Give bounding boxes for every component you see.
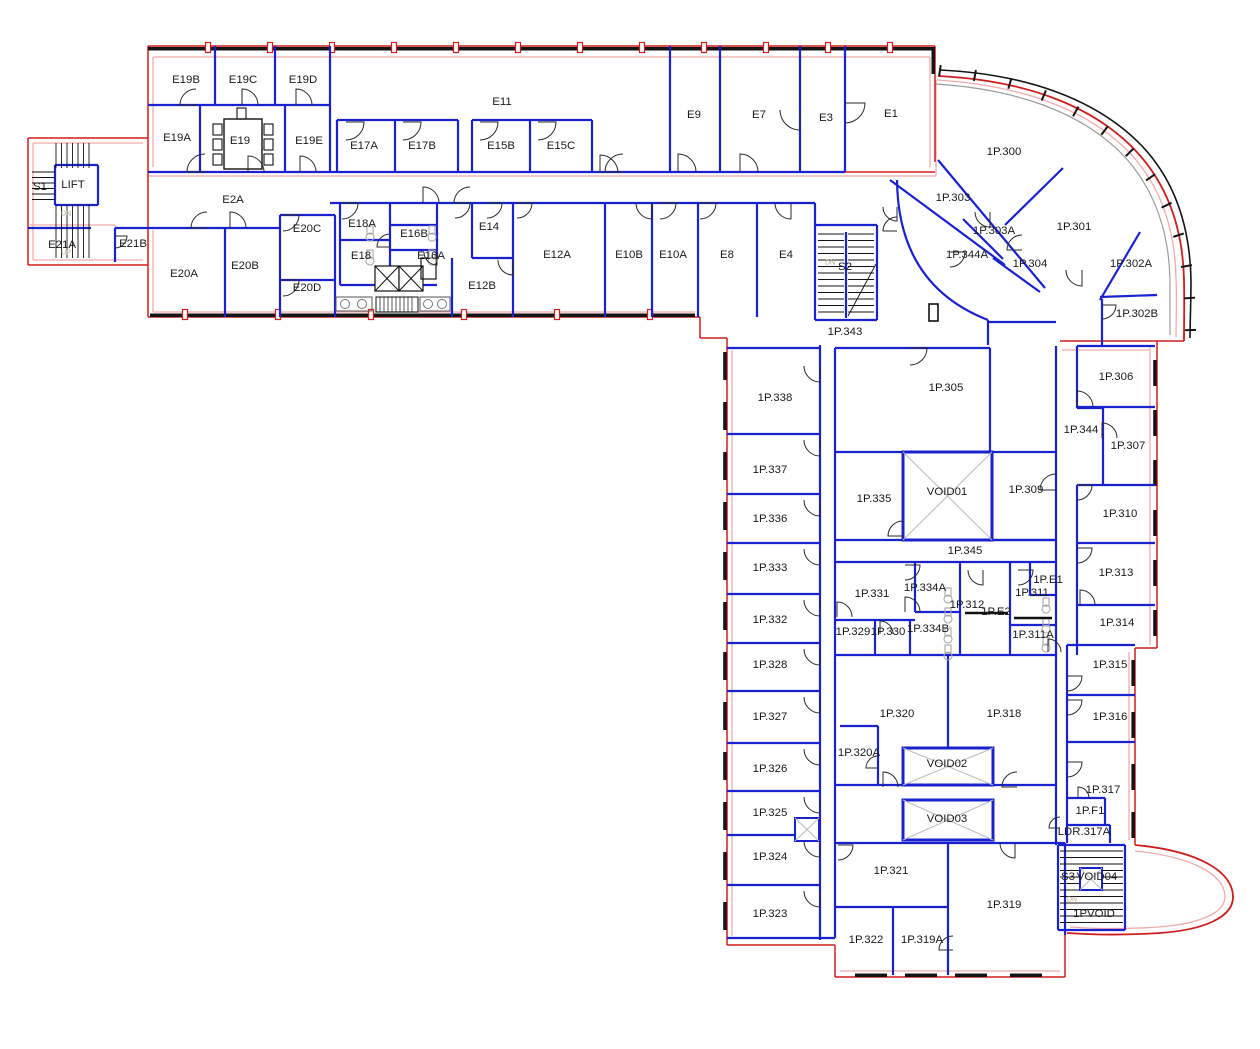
room-label-1P-324: 1P.324	[753, 851, 788, 863]
window-band-west-wing	[723, 452, 727, 480]
door-swing	[804, 697, 820, 713]
door-swing	[905, 597, 920, 612]
room-label-E19D: E19D	[289, 74, 318, 86]
window-band-west-wing	[723, 552, 727, 580]
door-swing	[804, 500, 820, 516]
room-label-1P-325: 1P.325	[753, 807, 788, 819]
window-band-east-upper	[1153, 360, 1157, 386]
room-label-1P-336: 1P.336	[753, 513, 788, 525]
window-mullion	[516, 43, 521, 53]
door-swing	[1066, 270, 1082, 286]
door-swing	[636, 203, 652, 219]
room-label-1P-345: 1P.345	[948, 545, 983, 557]
door-swing	[804, 749, 820, 765]
door-swing	[498, 260, 513, 275]
room-label-1P-310: 1P.310	[1103, 508, 1138, 520]
door-swing	[888, 521, 903, 536]
room-label-1P-317: 1P.317	[1086, 784, 1121, 796]
room-label-1P-315: 1P.315	[1093, 659, 1128, 671]
door-swing	[480, 122, 498, 140]
room-label-1P-313: 1P.313	[1099, 567, 1134, 579]
window-mullion	[640, 43, 645, 53]
door-leaf-on-curve	[929, 304, 938, 321]
door-swing	[296, 89, 312, 105]
room-label-E20B: E20B	[231, 260, 259, 272]
room-label-1P-337: 1P.337	[753, 464, 788, 476]
room-label-1P-338: 1P.338	[758, 392, 793, 404]
door-swing	[804, 797, 820, 813]
room-label-VOID02: VOID02	[927, 758, 968, 770]
room-label-E10A: E10A	[659, 249, 687, 261]
window-band-west-wing	[723, 702, 727, 730]
window-band-top	[148, 47, 935, 51]
window-band-bottom-west	[150, 314, 695, 318]
door-swing	[883, 217, 897, 231]
chair	[264, 154, 273, 165]
door-swing	[242, 89, 258, 105]
room-label-1P-323: 1P.323	[753, 908, 788, 920]
door-swing	[487, 203, 502, 218]
room-label-1P-319: 1P.319	[987, 899, 1022, 911]
curved-facade-inner-pink	[937, 80, 1176, 337]
sink-basin	[341, 300, 350, 309]
room-label-E1: E1	[884, 108, 898, 120]
room-label-1P-309: 1P.309	[1009, 484, 1044, 496]
room-label-E17B: E17B	[408, 140, 436, 152]
room-label-1P-328: 1P.328	[753, 659, 788, 671]
sink-counter	[420, 297, 450, 311]
window-band-bottom-block	[855, 974, 887, 978]
room-label-E21B: E21B	[119, 238, 147, 250]
door-swing	[740, 154, 758, 172]
window-band-west-wing	[723, 402, 727, 430]
window-mullion	[206, 43, 211, 53]
room-label-1P-333: 1P.333	[753, 562, 788, 574]
door-swing	[660, 203, 676, 219]
window-band-east-upper	[1153, 410, 1157, 436]
room-label-1P-332: 1P.332	[753, 614, 788, 626]
room-label-1P-301: 1P.301	[1057, 221, 1092, 233]
room-label-1P-311A: 1P.311A	[1012, 629, 1054, 641]
sink-basin	[358, 300, 367, 309]
door-swing	[600, 155, 618, 173]
room-label-1P-326: 1P.326	[753, 763, 788, 775]
door-swing	[838, 845, 853, 860]
room-label-E9: E9	[687, 109, 701, 121]
door-swing	[1077, 548, 1092, 563]
room-label-E3: E3	[819, 112, 833, 124]
room-label-1P-344: 1P.344	[1064, 424, 1099, 436]
window-band-east-upper	[1153, 510, 1157, 536]
door-swing	[538, 122, 556, 140]
window-band-east-lower	[1131, 660, 1135, 686]
window-mullion	[702, 43, 707, 53]
room-label-S3: S3	[1061, 871, 1075, 883]
stair-mark: DN	[61, 211, 71, 218]
window-band-bottom-block	[905, 974, 937, 978]
window-band-west-wing	[723, 602, 727, 630]
room-label-1P-311: 1P.311	[1015, 587, 1049, 599]
window-mullion	[826, 43, 831, 53]
window-band-west-wing	[723, 752, 727, 780]
room-label-E17A: E17A	[350, 140, 378, 152]
room-label-E15C: E15C	[547, 140, 576, 152]
interior-wall	[1100, 295, 1157, 297]
door-swing	[968, 570, 983, 585]
room-label-1P-314: 1P.314	[1100, 617, 1135, 629]
door-swing	[804, 549, 820, 565]
floor-plan: E19BE19CE19DE19AE19E19EE11E17AE17BE15BE1…	[0, 0, 1260, 1049]
sink-basin	[424, 300, 433, 309]
room-label-1P-320: 1P.320	[880, 708, 915, 720]
floor-plan-svg: E19BE19CE19DE19AE19E19EE11E17AE17BE15BE1…	[0, 0, 1260, 1049]
stair-mark: DN	[825, 260, 835, 267]
door-swing	[1067, 700, 1082, 715]
interior-wall	[1005, 168, 1063, 225]
room-label-E2A: E2A	[222, 194, 244, 206]
door-swing	[191, 212, 207, 228]
window-band-west-wing	[723, 652, 727, 680]
room-label-1P-331: 1P.331	[855, 588, 890, 600]
room-label-E18A: E18A	[348, 218, 376, 230]
stair-mark: UP	[61, 250, 71, 257]
room-label-E19A: E19A	[163, 132, 191, 144]
room-label-1P-304: 1P.304	[1013, 258, 1048, 270]
room-label-E20D: E20D	[293, 282, 322, 294]
room-label-VOID03: VOID03	[927, 813, 968, 825]
room-label-1P-344A: 1P.344A	[946, 249, 989, 261]
door-swing	[300, 156, 316, 172]
door-swing	[910, 348, 927, 365]
door-swing	[1007, 235, 1022, 250]
window-band-west-wing	[723, 852, 727, 880]
exterior-inner-lines	[30, 57, 1225, 971]
room-label-1P-329: 1P.329	[836, 626, 871, 638]
door-swing	[454, 187, 470, 203]
window-band-east-lower	[1131, 812, 1135, 838]
room-label-1P-319A: 1P.319A	[901, 934, 944, 946]
room-label-1P-334A: 1P.334A	[904, 582, 947, 594]
door-swing	[180, 89, 196, 105]
window-band-west-wing	[723, 352, 727, 380]
door-swing	[1102, 305, 1116, 319]
room-label-VOID04: VOID04	[1077, 871, 1118, 883]
stair-break-line	[848, 264, 876, 316]
window-mullion	[578, 43, 583, 53]
room-label-E12B: E12B	[468, 280, 496, 292]
room-label-1P-E1: 1P.E1	[1033, 574, 1063, 586]
exterior-walls	[28, 46, 1233, 977]
sink-basin	[438, 300, 447, 309]
door-swing	[700, 203, 716, 219]
window-band-east-upper	[1153, 610, 1157, 636]
door-swing	[517, 203, 532, 218]
room-label-1P-302B: 1P.302B	[1116, 308, 1158, 320]
room-label-LIFT: LIFT	[61, 179, 84, 191]
room-label-E11: E11	[492, 96, 511, 108]
room-label-1P-F1: 1P.F1	[1076, 805, 1105, 817]
window-band-west-wing	[723, 502, 727, 530]
chair	[264, 139, 273, 150]
room-label-E19C: E19C	[229, 74, 258, 86]
room-label-VOID01: VOID01	[927, 486, 968, 498]
curved-facade-gray	[936, 84, 1170, 335]
window-band-west-wing	[723, 902, 727, 930]
window-bands	[148, 43, 1196, 978]
chair	[213, 124, 222, 135]
window-mullion	[764, 43, 769, 53]
room-label-S1: S1	[33, 181, 47, 193]
window-band-east-lower	[1131, 712, 1135, 738]
room-label-1PVOID: 1PVOID	[1073, 908, 1115, 920]
chair	[213, 154, 222, 165]
window-band-bottom-block	[1010, 974, 1042, 978]
door-swing	[455, 203, 470, 218]
void-shafts	[375, 266, 1102, 890]
room-label-E4: E4	[779, 249, 793, 261]
door-swing	[775, 203, 791, 219]
chair	[237, 108, 246, 119]
room-label-1P-302A: 1P.302A	[1110, 258, 1153, 270]
door-swing	[1077, 391, 1093, 407]
door-swing	[1077, 485, 1092, 500]
window-band-east-upper	[1153, 560, 1157, 586]
room-label-1P-307: 1P.307	[1111, 440, 1146, 452]
room-label-1P-318: 1P.318	[987, 708, 1022, 720]
room-label-1P-322: 1P.322	[849, 934, 884, 946]
room-label-E20A: E20A	[170, 268, 198, 280]
door-swing	[403, 122, 421, 140]
room-label-1P-E2: 1P.E2	[981, 606, 1011, 618]
door-swing	[804, 891, 820, 907]
room-label-1P-334B: 1P.334B	[907, 623, 949, 635]
room-label-E8: E8	[720, 249, 734, 261]
door-swing	[804, 841, 820, 857]
room-label-E12A: E12A	[543, 249, 571, 261]
stair-mark: DN	[1067, 897, 1077, 904]
window-band-west-wing	[723, 802, 727, 830]
room-label-E15B: E15B	[487, 140, 515, 152]
window-band-east-upper	[1153, 460, 1157, 486]
room-label-S2: S2	[838, 261, 852, 273]
window-mullion	[462, 310, 467, 320]
room-label-E16A: E16A	[417, 250, 445, 262]
door-swing	[423, 187, 439, 203]
room-label-1P-300: 1P.300	[987, 146, 1022, 158]
room-label-E19: E19	[230, 135, 250, 147]
room-label-E14: E14	[479, 221, 499, 233]
door-swing	[804, 366, 820, 382]
door-swing	[845, 103, 865, 123]
room-label-1P-303: 1P.303	[936, 192, 971, 204]
room-label-1P-335: 1P.335	[857, 493, 892, 505]
room-label-E19B: E19B	[172, 74, 200, 86]
curved-facade-tick	[1184, 298, 1195, 299]
door-swing	[1067, 762, 1082, 777]
room-label-LDR-317A: LDR.317A	[1058, 826, 1111, 838]
window-band-east-lower	[1131, 764, 1135, 790]
door-swing	[1067, 676, 1082, 691]
door-swing	[804, 440, 820, 456]
room-label-1P-321: 1P.321	[874, 865, 909, 877]
door-swing	[1102, 423, 1117, 438]
chair	[213, 139, 222, 150]
chair	[264, 124, 273, 135]
room-label-1P-343: 1P.343	[828, 326, 863, 338]
room-label-1P-303A: 1P.303A	[973, 225, 1016, 237]
door-swing	[905, 565, 920, 580]
door-swing	[780, 110, 800, 130]
room-label-1P-312: 1P.312	[950, 599, 985, 611]
room-label-1P-320A: 1P.320A	[838, 747, 881, 759]
window-mullion	[888, 43, 893, 53]
window-mullion	[555, 310, 560, 320]
door-swing	[187, 154, 205, 172]
room-label-E18: E18	[351, 250, 371, 262]
window-mullion	[183, 310, 188, 320]
door-swing	[1000, 843, 1015, 858]
room-label-E10B: E10B	[615, 249, 643, 261]
curved-facade-red	[938, 76, 1184, 341]
window-mullion	[268, 43, 273, 53]
window-band-e1	[932, 50, 936, 74]
window-mullion	[454, 43, 459, 53]
door-swing	[1080, 590, 1095, 605]
room-label-E7: E7	[752, 109, 766, 121]
room-label-E19E: E19E	[295, 135, 323, 147]
curved-facade-tick	[939, 65, 941, 76]
room-label-1P-306: 1P.306	[1099, 371, 1134, 383]
room-label-1P-330: 1P.330	[871, 626, 906, 638]
room-label-1P-305: 1P.305	[929, 382, 964, 394]
curved-facade-tick	[1008, 78, 1011, 89]
room-label-E20C: E20C	[293, 223, 322, 235]
fixtures-furniture	[213, 108, 1052, 660]
curved-facade-black	[940, 70, 1191, 338]
room-label-1P-327: 1P.327	[753, 711, 788, 723]
door-swing	[804, 649, 820, 665]
door-swing	[342, 203, 358, 219]
door-swing	[837, 602, 852, 617]
door-swing	[678, 154, 696, 172]
window-band-bottom-block	[955, 974, 987, 978]
door-swing	[804, 600, 820, 616]
door-swing	[230, 212, 246, 228]
door-swing	[346, 122, 364, 140]
window-mullion	[392, 43, 397, 53]
room-label-1P-316: 1P.316	[1093, 711, 1128, 723]
room-label-E16B: E16B	[400, 228, 428, 240]
